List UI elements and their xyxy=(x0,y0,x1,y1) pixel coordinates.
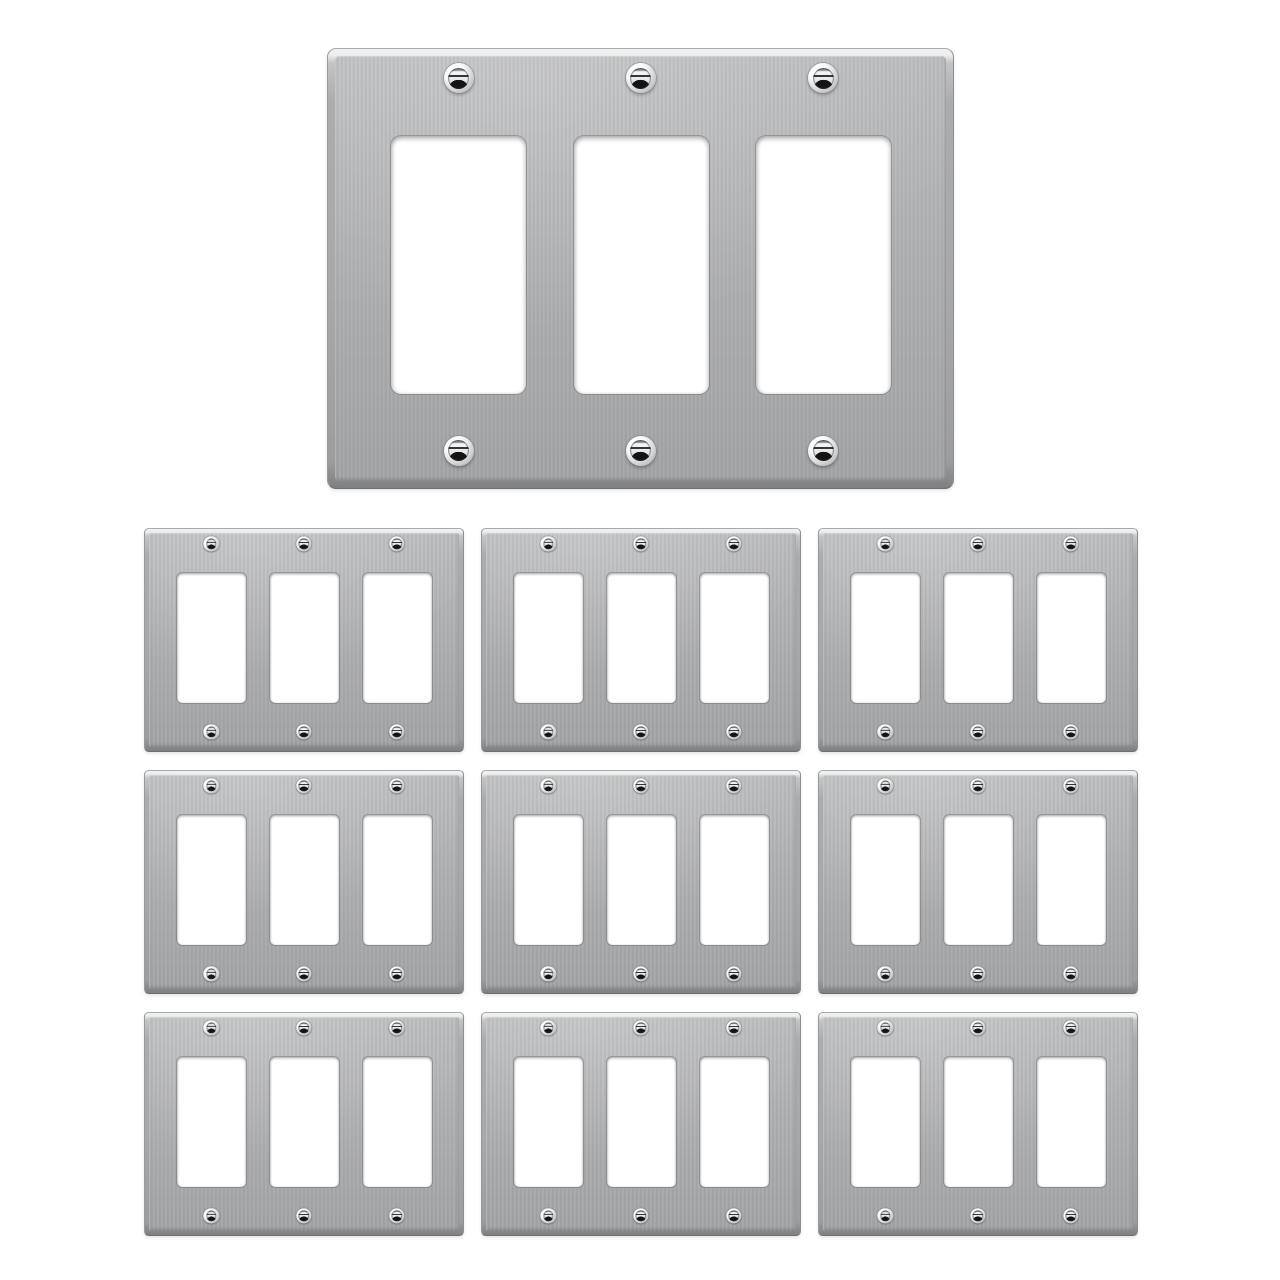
rocker-cutout xyxy=(177,1057,246,1188)
wall-plate-grid xyxy=(144,528,1136,1234)
rocker-cutout xyxy=(1037,1057,1106,1188)
rocker-cutout xyxy=(363,815,432,946)
rocker-cutout xyxy=(700,1057,769,1188)
wall-plate xyxy=(481,528,801,752)
rocker-cutout xyxy=(270,1057,339,1188)
mounting-screw xyxy=(444,436,474,466)
wall-plate xyxy=(818,1012,1138,1236)
wall-plate xyxy=(144,770,464,994)
rocker-cutout xyxy=(363,573,432,704)
rocker-cutout xyxy=(700,573,769,704)
rocker-cutout xyxy=(514,815,583,946)
rocker-cutout xyxy=(851,1057,920,1188)
rocker-cutout xyxy=(944,573,1013,704)
mounting-screw xyxy=(444,63,474,93)
mounting-screw xyxy=(808,63,838,93)
wall-plate xyxy=(481,770,801,994)
rocker-cutout xyxy=(851,573,920,704)
rocker-cutout xyxy=(944,1057,1013,1188)
wall-plate xyxy=(144,528,464,752)
rocker-cutout xyxy=(607,573,676,704)
hero-wall-plate xyxy=(327,48,952,487)
wall-plate xyxy=(818,770,1138,994)
rocker-cutout xyxy=(391,136,526,394)
rocker-cutout xyxy=(700,815,769,946)
rocker-cutout xyxy=(514,1057,583,1188)
wall-plate xyxy=(327,48,954,489)
rocker-cutout xyxy=(514,573,583,704)
mounting-screw xyxy=(626,436,656,466)
rocker-cutout xyxy=(607,815,676,946)
rocker-cutout xyxy=(607,1057,676,1188)
wall-plate xyxy=(818,528,1138,752)
rocker-cutout xyxy=(944,815,1013,946)
product-photo xyxy=(0,0,1280,1280)
rocker-cutout xyxy=(177,573,246,704)
rocker-cutout xyxy=(363,1057,432,1188)
rocker-cutout xyxy=(1037,815,1106,946)
wall-plate xyxy=(144,1012,464,1236)
rocker-cutout xyxy=(270,815,339,946)
rocker-cutout xyxy=(1037,573,1106,704)
mounting-screw xyxy=(808,436,838,466)
mounting-screw xyxy=(626,63,656,93)
rocker-cutout xyxy=(177,815,246,946)
rocker-cutout xyxy=(270,573,339,704)
rocker-cutout xyxy=(851,815,920,946)
rocker-cutout xyxy=(756,136,891,394)
wall-plate xyxy=(481,1012,801,1236)
rocker-cutout xyxy=(574,136,709,394)
